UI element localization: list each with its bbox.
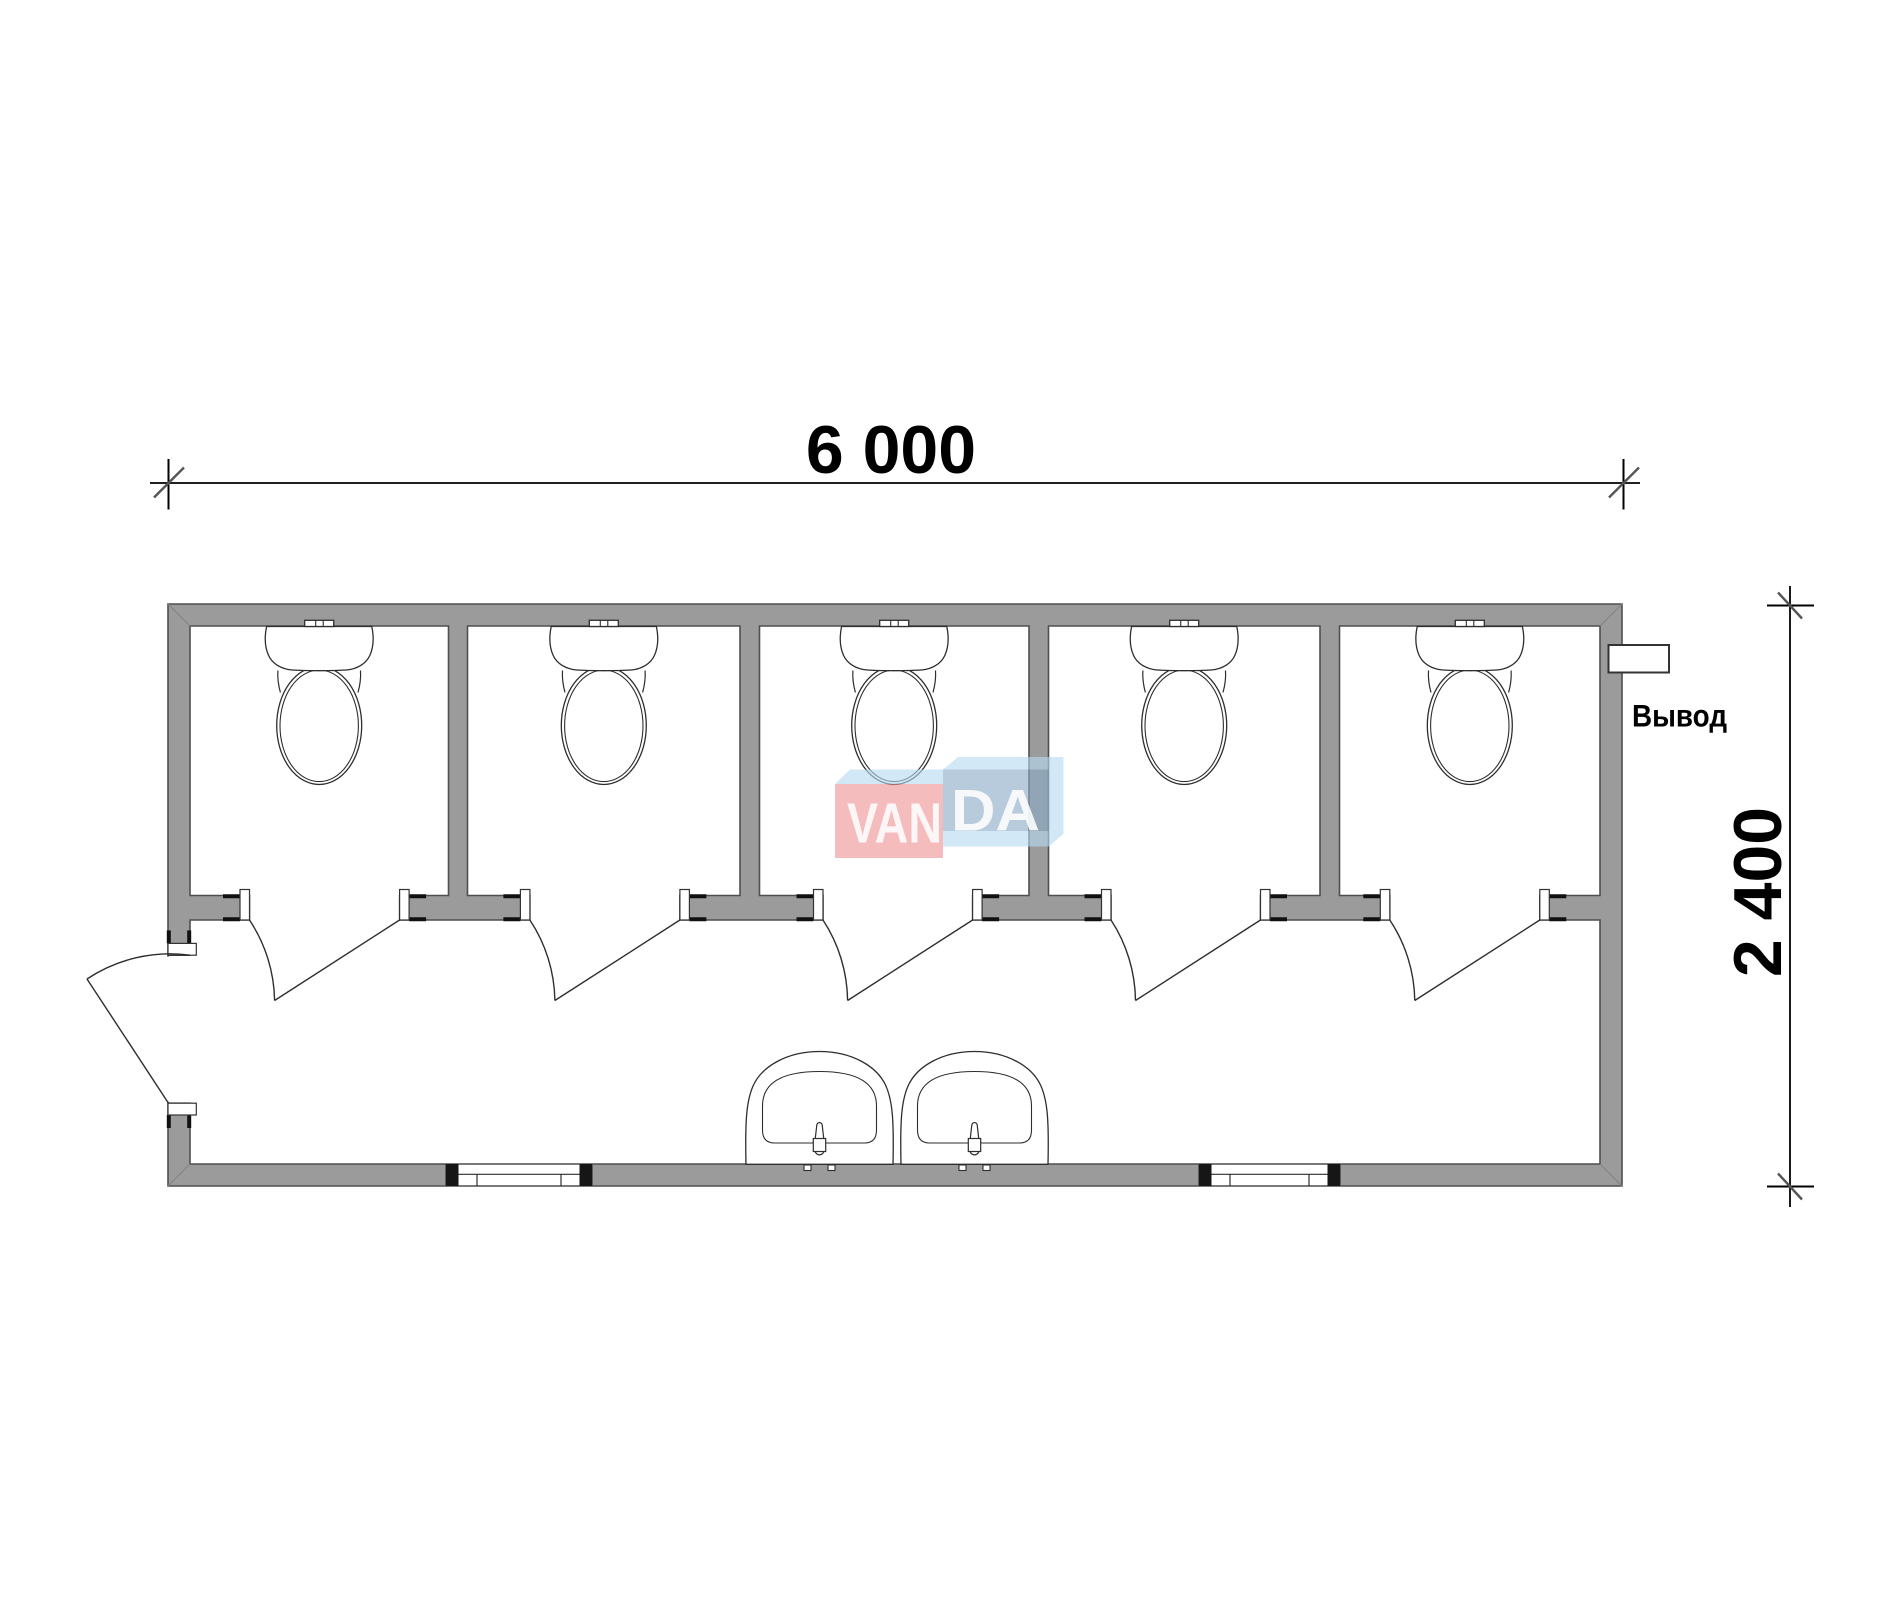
svg-text:VAN: VAN [847, 792, 942, 856]
svg-text:2 400: 2 400 [1720, 807, 1796, 977]
svg-text:6 000: 6 000 [806, 412, 976, 488]
svg-text:DA: DA [951, 779, 1040, 844]
svg-text:Вывод: Вывод [1632, 698, 1727, 734]
